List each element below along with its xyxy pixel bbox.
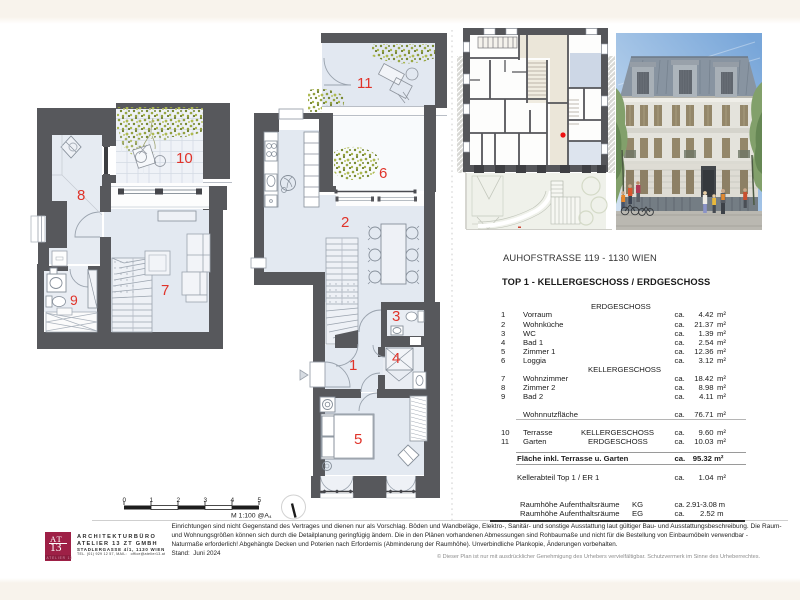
svg-text:11: 11 [357, 75, 373, 92]
svg-text:5: 5 [354, 431, 362, 448]
svg-text:10: 10 [176, 150, 193, 167]
svg-text:7: 7 [161, 282, 169, 299]
svg-text:1: 1 [150, 497, 154, 504]
svg-text:2: 2 [341, 214, 349, 231]
svg-text:4: 4 [231, 497, 235, 504]
svg-text:M 1:100 @A₄: M 1:100 @A₄ [231, 513, 272, 520]
svg-text:6: 6 [379, 165, 387, 182]
svg-text:1: 1 [349, 357, 357, 374]
svg-text:9: 9 [70, 292, 78, 308]
svg-text:8: 8 [77, 187, 85, 204]
svg-text:0: 0 [123, 497, 127, 504]
svg-text:3: 3 [392, 308, 400, 325]
svg-text:5: 5 [258, 497, 262, 504]
svg-text:3: 3 [204, 497, 208, 504]
svg-text:2: 2 [177, 497, 181, 504]
svg-text:4: 4 [392, 350, 400, 367]
